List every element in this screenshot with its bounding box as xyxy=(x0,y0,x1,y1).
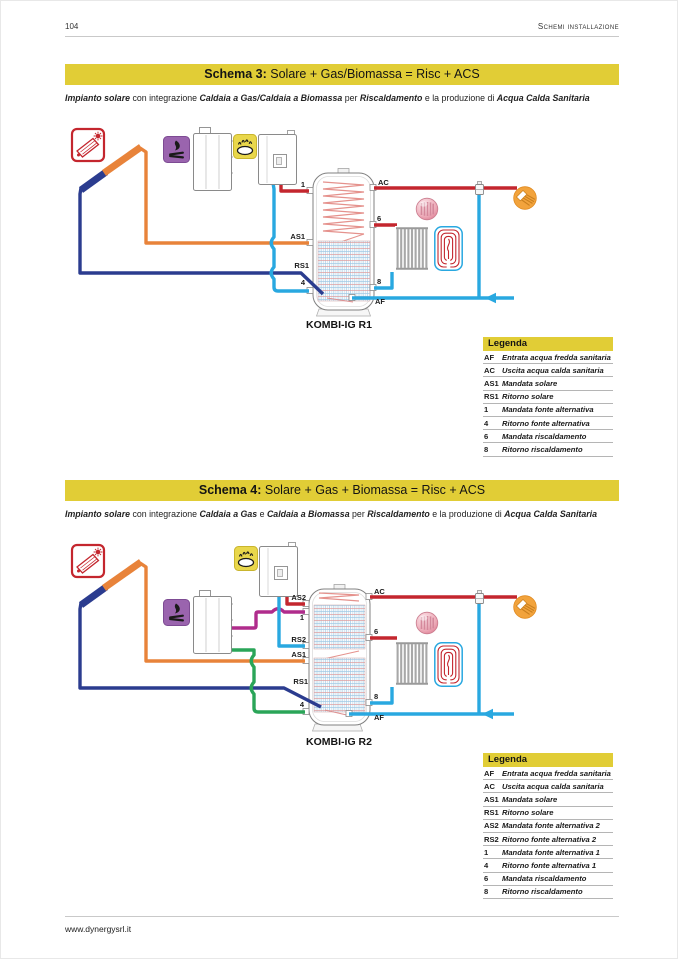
port-label-rs2: RS2 xyxy=(291,635,306,644)
lower-coil-block xyxy=(314,658,365,712)
legend-row-description: Mandata solare xyxy=(502,379,557,388)
subtitle-emphasis: Caldaia a Gas/Caldaia a Biomassa xyxy=(199,93,342,103)
legend-row: AS2 Mandata fonte alternativa 2 xyxy=(483,820,613,833)
legend-row-code: RS1 xyxy=(484,808,502,817)
legend-row-code: RS2 xyxy=(484,835,502,844)
schema-4-title-text: Solare + Gas + Biomassa = Risc + ACS xyxy=(261,483,485,497)
legend-rows: AF Entrata acqua fredda sanitaria AC Usc… xyxy=(483,767,613,899)
footer-url: www.dynergysrl.it xyxy=(65,924,131,934)
port-label-1: 1 xyxy=(300,613,304,622)
subtitle-emphasis: Caldaia a Gas xyxy=(199,509,257,519)
collector-supply-segment xyxy=(104,147,141,173)
schema-4-title-bar: Schema 4: Solare + Gas + Biomassa = Risc… xyxy=(65,480,619,501)
schema-3-subtitle: Impianto solare con integrazione Caldaia… xyxy=(65,93,619,103)
legend-schema-3: Legenda AF Entrata acqua fredda sanitari… xyxy=(483,337,613,457)
port-label-6: 6 xyxy=(377,214,381,223)
legend-row-code: AC xyxy=(484,366,502,375)
subtitle-emphasis: Riscaldamento xyxy=(360,93,423,103)
subtitle-text: e la produzione di xyxy=(430,509,504,519)
legend-row-description: Ritorno solare xyxy=(502,392,553,401)
port-label-1: 1 xyxy=(301,180,305,189)
subtitle-emphasis: Impianto solare xyxy=(65,93,130,103)
upper-coil-block xyxy=(314,605,365,649)
schema-3-title-text: Solare + Gas/Biomassa = Risc + ACS xyxy=(267,67,480,81)
legend-row-description: Ritorno fonte alternativa xyxy=(502,419,590,428)
solar-collector-icon xyxy=(72,129,104,161)
legend-row-description: Mandata solare xyxy=(502,795,557,804)
legend-row: AF Entrata acqua fredda sanitaria xyxy=(483,767,613,780)
legend-schema-4: Legenda AF Entrata acqua fredda sanitari… xyxy=(483,753,613,899)
hot-water-tap-icon xyxy=(514,187,537,210)
footer-rule xyxy=(65,916,619,917)
schema-3-title-label: Schema 3: xyxy=(204,67,267,81)
legend-row-code: 1 xyxy=(484,848,502,857)
legend-row: 1 Mandata fonte alternativa 1 xyxy=(483,846,613,859)
solar-collector-icon xyxy=(72,545,104,577)
subtitle-text: per xyxy=(342,93,360,103)
legend-row-code: AF xyxy=(484,769,502,778)
legend-row-description: Mandata riscaldamento xyxy=(502,874,586,883)
radiator xyxy=(395,641,429,686)
diagram-schema-3: 1 AC 6 AS1 RS1 4 8 AF xyxy=(72,128,536,317)
legend-row: RS1 Ritorno solare xyxy=(483,391,613,404)
legend-row: 6 Mandata riscaldamento xyxy=(483,873,613,886)
legend-row-description: Mandata riscaldamento xyxy=(502,432,586,441)
legend-row-description: Ritorno riscaldamento xyxy=(502,445,583,454)
legend-rows: AF Entrata acqua fredda sanitaria AC Usc… xyxy=(483,351,613,457)
port-label-8: 8 xyxy=(377,277,381,286)
port-label-as1: AS1 xyxy=(290,232,305,241)
cold-water-inlet-arrow xyxy=(485,293,496,303)
subtitle-text: per xyxy=(350,509,368,519)
legend-row-description: Mandata fonte alternativa xyxy=(502,405,594,414)
legend-row: AF Entrata acqua fredda sanitaria xyxy=(483,351,613,364)
legend-row: AS1 Mandata solare xyxy=(483,377,613,390)
legend-row-description: Uscita acqua calda sanitaria xyxy=(502,366,604,375)
port-label-rs1: RS1 xyxy=(294,261,309,270)
legend-row-code: AC xyxy=(484,782,502,791)
legend-row: 4 Ritorno fonte alternativa 1 xyxy=(483,859,613,872)
mixing-valve-icon xyxy=(476,591,484,604)
biomass-boiler xyxy=(164,128,234,191)
legend-row-code: 6 xyxy=(484,432,502,441)
cold-water-inlet-arrow xyxy=(482,709,493,719)
subtitle-text: con integrazione xyxy=(130,509,199,519)
subtitle-text: e xyxy=(257,509,267,519)
legend-row-code: AS1 xyxy=(484,379,502,388)
schema-3-title-bar: Schema 3: Solare + Gas/Biomassa = Risc +… xyxy=(65,64,619,85)
port-label-4: 4 xyxy=(300,700,305,709)
legend-row-description: Ritorno solare xyxy=(502,808,553,817)
subtitle-text: e la produzione di xyxy=(422,93,496,103)
legend-row: AC Uscita acqua calda sanitaria xyxy=(483,364,613,377)
legend-row-description: Mandata fonte alternativa 1 xyxy=(502,848,600,857)
floor-heating-loop-icon xyxy=(435,643,462,686)
port-label-as2: AS2 xyxy=(291,593,306,602)
diagram-schema-4: AS2 1 RS2 AS1 RS1 4 AC 6 8 AF xyxy=(72,543,536,732)
legend-row-description: Mandata fonte alternativa 2 xyxy=(502,821,600,830)
legend-row: 1 Mandata fonte alternativa xyxy=(483,404,613,417)
subtitle-emphasis: Acqua Calda Sanitaria xyxy=(497,93,590,103)
legend-row-code: 4 xyxy=(484,419,502,428)
legend-row: 8 Ritorno riscaldamento xyxy=(483,443,613,456)
legend-title: Legenda xyxy=(483,753,613,767)
gas-boiler xyxy=(234,131,297,185)
gas-boiler xyxy=(235,543,298,597)
catalog-page: 1 AC 6 AS1 RS1 4 8 AF xyxy=(0,0,678,959)
port-label-ac: AC xyxy=(378,178,389,187)
port-label-ac: AC xyxy=(374,587,385,596)
legend-row-code: AS2 xyxy=(484,821,502,830)
legend-row: RS2 Ritorno fonte alternativa 2 xyxy=(483,833,613,846)
pipe-1-biomass-supply xyxy=(229,609,305,628)
page-number: 104 xyxy=(65,22,78,31)
legend-row-code: AS1 xyxy=(484,795,502,804)
mixing-valve-icon xyxy=(476,182,484,195)
port-label-4: 4 xyxy=(301,278,306,287)
legend-row-code: 6 xyxy=(484,874,502,883)
legend-row: AC Uscita acqua calda sanitaria xyxy=(483,780,613,793)
legend-row-code: AF xyxy=(484,353,502,362)
port-label-af: AF xyxy=(374,713,384,722)
legend-row: 4 Ritorno fonte alternativa xyxy=(483,417,613,430)
radiator-photo-icon xyxy=(416,612,438,634)
legend-row: RS1 Ritorno solare xyxy=(483,807,613,820)
legend-row-description: Ritorno riscaldamento xyxy=(502,887,583,896)
legend-row-description: Ritorno fonte alternativa 1 xyxy=(502,861,596,870)
legend-row-code: 4 xyxy=(484,861,502,870)
legend-row-code: 8 xyxy=(484,887,502,896)
collector-return-segment xyxy=(81,172,106,190)
port-label-as1: AS1 xyxy=(291,650,306,659)
subtitle-emphasis: Acqua Calda Sanitaria xyxy=(504,509,597,519)
collector-supply-segment xyxy=(104,562,141,588)
legend-row-description: Ritorno fonte alternativa 2 xyxy=(502,835,596,844)
storage-tank-kombi-ig-r1 xyxy=(307,169,376,317)
legend-row: AS1 Mandata solare xyxy=(483,793,613,806)
collector-return-segment xyxy=(81,587,106,605)
subtitle-emphasis: Impianto solare xyxy=(65,509,130,519)
subtitle-emphasis: Riscaldamento xyxy=(367,509,430,519)
port-label-8: 8 xyxy=(374,692,378,701)
biomass-boiler xyxy=(164,591,234,654)
legend-row-description: Entrata acqua fredda sanitaria xyxy=(502,769,611,778)
legend-row-code: 1 xyxy=(484,405,502,414)
legend-row-code: 8 xyxy=(484,445,502,454)
legend-row: 6 Mandata riscaldamento xyxy=(483,430,613,443)
subtitle-emphasis: Caldaia a Biomassa xyxy=(267,509,350,519)
section-title: Schemi installazione xyxy=(301,22,619,31)
port-label-rs1: RS1 xyxy=(293,677,308,686)
radiator xyxy=(395,226,429,271)
port-label-af: AF xyxy=(375,297,385,306)
legend-title: Legenda xyxy=(483,337,613,351)
port-label-6: 6 xyxy=(374,627,378,636)
legend-row-code: RS1 xyxy=(484,392,502,401)
storage-tank-kombi-ig-r2 xyxy=(303,585,372,732)
radiator-photo-icon xyxy=(416,198,438,220)
schema-4-subtitle: Impianto solare con integrazione Caldaia… xyxy=(65,509,619,519)
subtitle-text: con integrazione xyxy=(130,93,199,103)
legend-row-description: Entrata acqua fredda sanitaria xyxy=(502,353,611,362)
schema-4-title-label: Schema 4: xyxy=(199,483,262,497)
pipe-rs1-solar-return xyxy=(80,188,323,294)
legend-row: 8 Ritorno riscaldamento xyxy=(483,886,613,899)
header-rule xyxy=(65,36,619,37)
product-name-kombi-ig-r2: KOMBI-IG R2 xyxy=(278,736,400,748)
floor-heating-loop-icon xyxy=(435,227,462,270)
product-name-kombi-ig-r1: KOMBI-IG R1 xyxy=(278,319,400,331)
lower-coil-block xyxy=(318,241,370,301)
hot-water-tap-icon xyxy=(514,596,537,619)
legend-row-description: Uscita acqua calda sanitaria xyxy=(502,782,604,791)
